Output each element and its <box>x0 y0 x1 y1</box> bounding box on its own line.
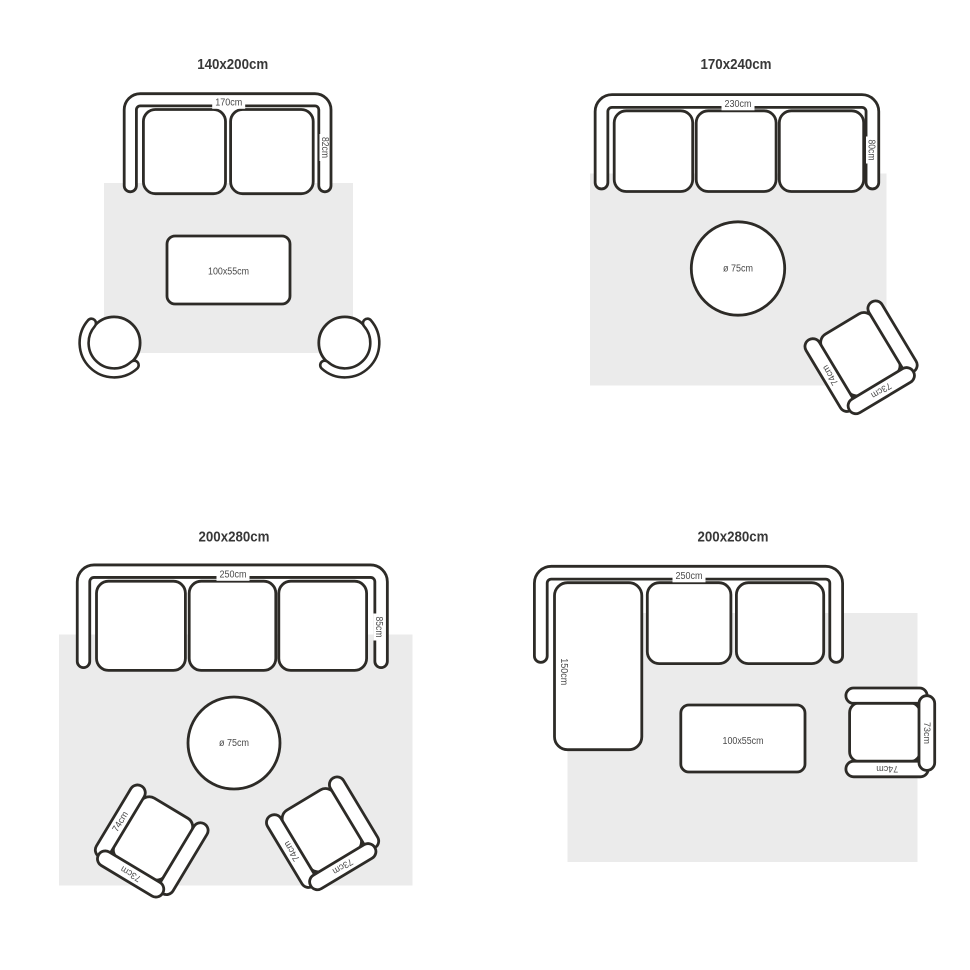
svg-text:100x55cm: 100x55cm <box>208 267 249 278</box>
svg-text:150cm: 150cm <box>558 658 569 685</box>
svg-text:85cm: 85cm <box>373 617 384 638</box>
svg-text:100x55cm: 100x55cm <box>723 736 764 747</box>
svg-text:73cm: 73cm <box>922 722 932 744</box>
svg-text:200x280cm: 200x280cm <box>199 529 270 546</box>
svg-text:74cm: 74cm <box>876 764 898 774</box>
svg-text:200x280cm: 200x280cm <box>698 529 769 546</box>
svg-text:170x240cm: 170x240cm <box>701 56 772 73</box>
svg-text:140x200cm: 140x200cm <box>197 56 268 73</box>
svg-text:80cm: 80cm <box>866 140 877 161</box>
svg-text:82cm: 82cm <box>319 137 330 158</box>
svg-text:250cm: 250cm <box>676 571 703 582</box>
svg-text:230cm: 230cm <box>725 99 752 110</box>
svg-text:250cm: 250cm <box>220 569 247 580</box>
svg-text:170cm: 170cm <box>215 97 242 108</box>
svg-text:ø 75cm: ø 75cm <box>219 738 249 749</box>
svg-text:ø 75cm: ø 75cm <box>723 264 753 275</box>
